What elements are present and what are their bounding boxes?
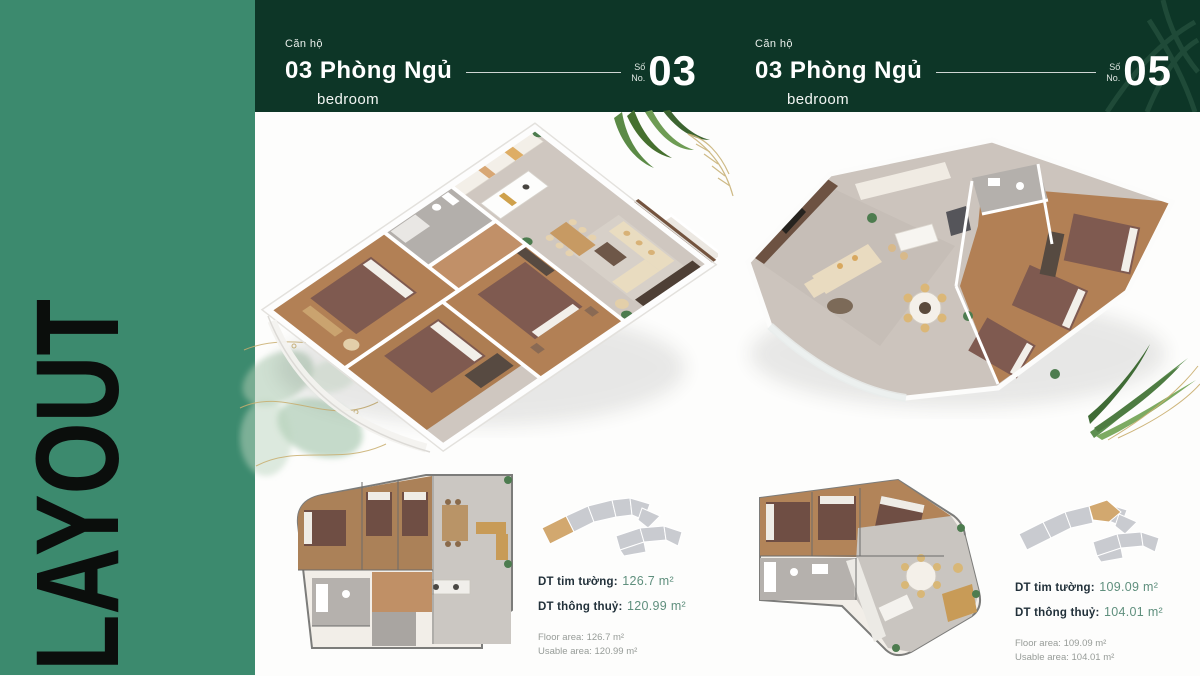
unit-no-en: No.: [1106, 73, 1120, 84]
header-band: Căn hộ 03 Phòng Ngủ Số No. 03 bedroom Că…: [255, 0, 1200, 112]
vertical-layout-title: LAYOUT: [18, 288, 138, 673]
wall-area-value: 109.09 m²: [1099, 580, 1158, 594]
area-english-lines: Floor area: 109.09 m² Usable area: 104.0…: [1015, 637, 1200, 665]
clear-area-value: 120.99 m²: [627, 599, 686, 613]
clear-area-value: 104.01 m²: [1104, 605, 1163, 619]
unit-05-info: DT tim tường: 109.09 m² DT thông thuỷ: 1…: [1015, 496, 1200, 665]
usable-area-en: Usable area: 104.01 m²: [1015, 651, 1200, 665]
area-english-lines: Floor area: 126.7 m² Usable area: 120.99…: [538, 631, 728, 659]
keyplan-unit-05: [1015, 496, 1165, 564]
keyplan-unit-03: [538, 490, 688, 558]
unit-title: 03 Phòng Ngủ: [285, 57, 452, 85]
page-title: LAYOUT: [18, 299, 138, 671]
floorplan-3d-unit-03: [258, 116, 718, 461]
header-rule: [466, 72, 621, 73]
unit-label: Căn hộ: [755, 38, 1172, 50]
unit-title: 03 Phòng Ngủ: [755, 57, 922, 85]
unit-subtitle: bedroom: [317, 91, 697, 108]
unit-no-labels: Số No.: [1106, 62, 1120, 84]
unit-no-labels: Số No.: [631, 62, 645, 84]
unit-label: Căn hộ: [285, 38, 697, 50]
sidebar: LAYOUT: [0, 0, 255, 675]
wall-area-label: DT tim tường:: [538, 576, 618, 588]
unit-no-vi: Số: [634, 62, 645, 73]
unit-subtitle: bedroom: [787, 91, 1172, 108]
unit-03-header: Căn hộ 03 Phòng Ngủ Số No. 03 bedroom: [285, 38, 697, 108]
unit-no-en: No.: [631, 73, 645, 84]
unit-number: 05: [1123, 53, 1172, 89]
wall-area-label: DT tim tường:: [1015, 582, 1095, 594]
clear-area-row: DT thông thuỷ: 104.01 m²: [1015, 603, 1200, 621]
floorplan-2d-unit-03: [276, 460, 524, 665]
aloe-leaves-icon: [1088, 336, 1200, 441]
wall-area-row: DT tim tường: 126.7 m²: [538, 572, 728, 590]
unit-number: 03: [648, 53, 697, 89]
usable-area-en: Usable area: 120.99 m²: [538, 645, 728, 659]
wall-area-value: 126.7 m²: [622, 574, 674, 588]
floorplan-2d-unit-05: [746, 466, 988, 676]
unit-03-info: DT tim tường: 126.7 m² DT thông thuỷ: 12…: [538, 490, 728, 659]
unit-05-header: Căn hộ 03 Phòng Ngủ Số No. 05 bedroom: [755, 38, 1172, 108]
clear-area-row: DT thông thuỷ: 120.99 m²: [538, 597, 728, 615]
floor-area-en: Floor area: 109.09 m²: [1015, 637, 1200, 651]
unit-no-vi: Số: [1109, 62, 1120, 73]
clear-area-label: DT thông thuỷ:: [538, 601, 623, 613]
wall-area-row: DT tim tường: 109.09 m²: [1015, 578, 1200, 596]
floor-area-en: Floor area: 126.7 m²: [538, 631, 728, 645]
clear-area-label: DT thông thuỷ:: [1015, 607, 1100, 619]
layout-brochure-page: { "sidebar": { "title": "LAYOUT" }, "uni…: [0, 0, 1200, 675]
header-rule: [936, 72, 1096, 73]
